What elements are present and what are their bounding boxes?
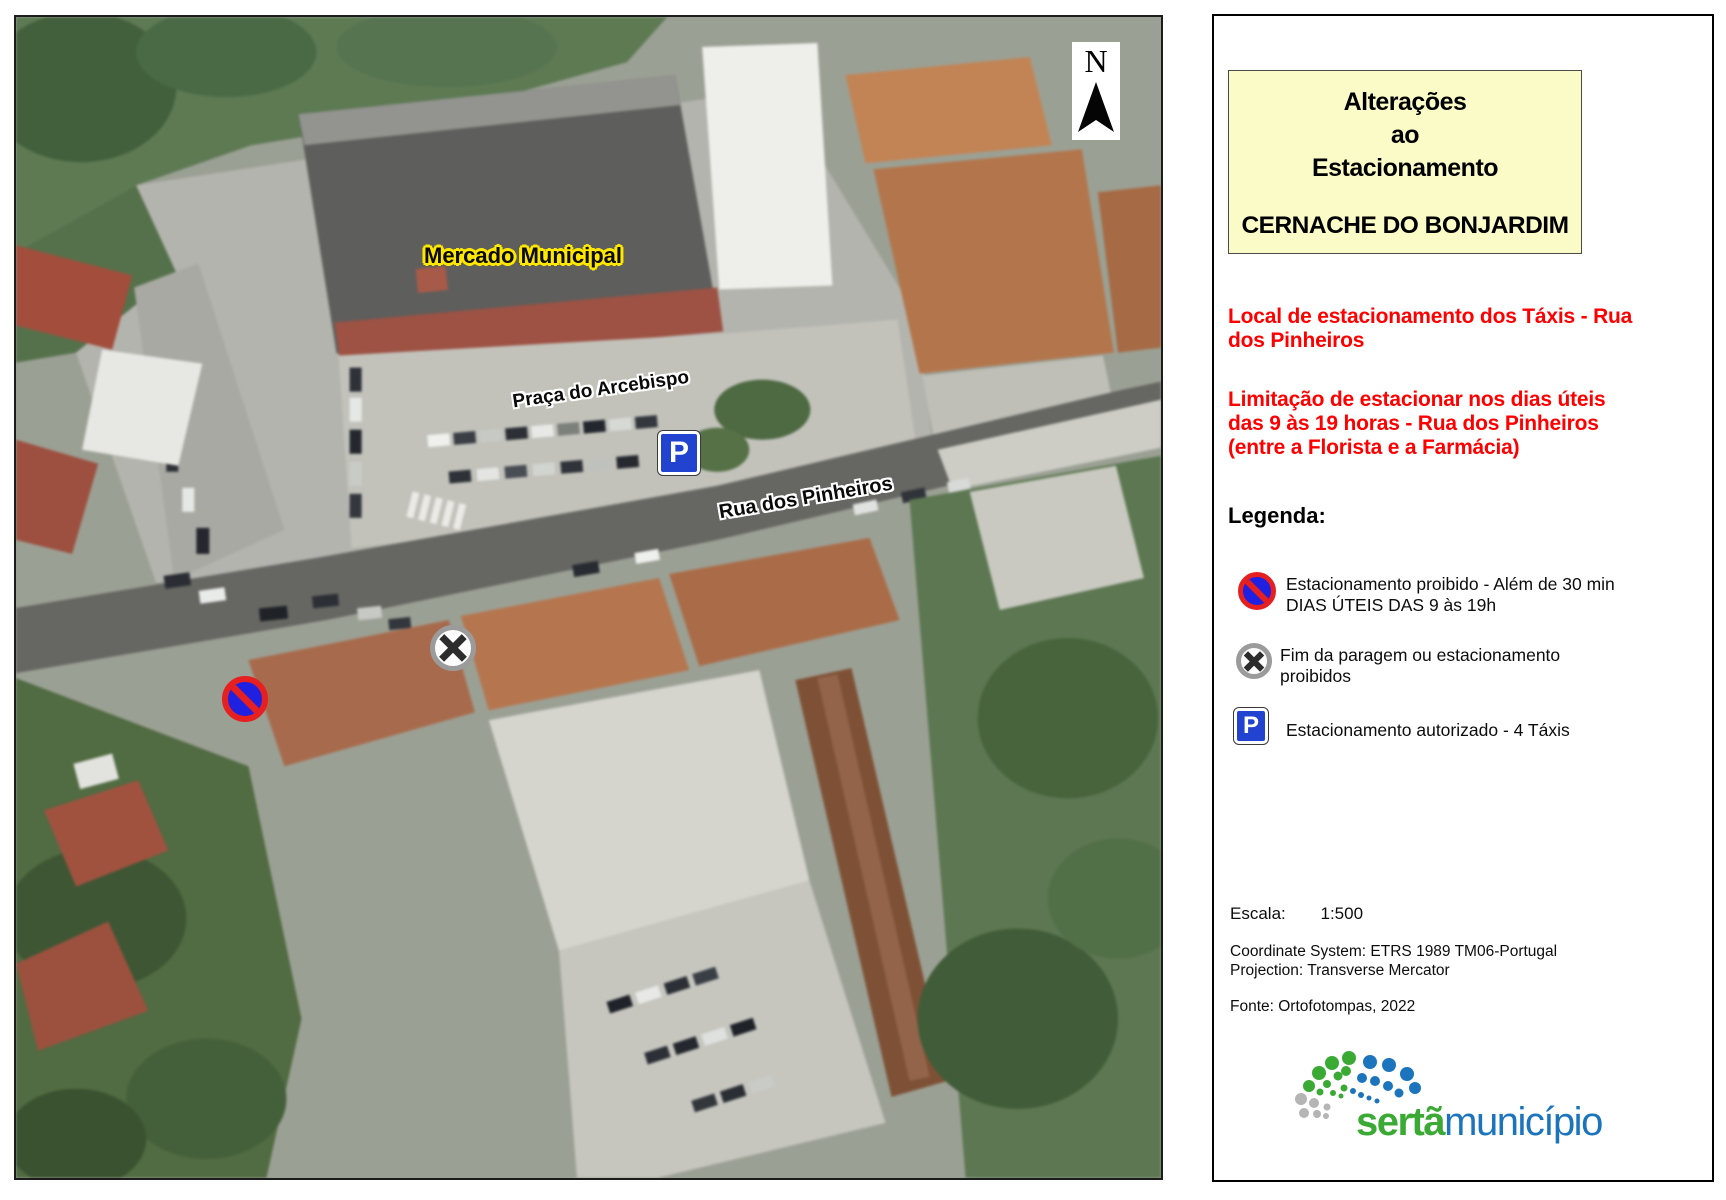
parking-sign-icon: P: [658, 431, 700, 475]
projection: Projection: Transverse Mercator: [1230, 961, 1557, 980]
parking-sign-letter: P: [669, 436, 689, 470]
aerial-map: Mercado Municipal Praça do Arcebispo Rua…: [14, 15, 1163, 1180]
note-taxi-location: Local de estacionamento dos Táxis - Rua …: [1228, 305, 1696, 353]
legend-item-end-restriction: Fim da paragem ou estacionamento proibid…: [1280, 645, 1560, 687]
no-parking-icon: [222, 676, 268, 722]
source-note: Fonte: Ortofotompas, 2022: [1230, 998, 1415, 1016]
scale-value: 1:500: [1320, 904, 1363, 923]
page-subtitle: CERNACHE DO BONJARDIM: [1229, 212, 1581, 240]
no-parking-icon: [1238, 572, 1276, 610]
end-restriction-icon: [430, 625, 476, 671]
parking-icon-letter: P: [1243, 712, 1259, 740]
serta-municipio-logo: sertãmunicípio: [1294, 1048, 1714, 1173]
coordinate-system: Coordinate System: ETRS 1989 TM06-Portug…: [1230, 942, 1557, 961]
logo-text-serta: sertã: [1356, 1100, 1444, 1144]
parking-icon: P: [1234, 708, 1268, 744]
north-letter: N: [1072, 42, 1120, 80]
end-restriction-icon: [1236, 643, 1272, 679]
legend-item-authorized-parking: Estacionamento autorizado - 4 Táxis: [1286, 720, 1570, 741]
logo-text-municipio: município: [1444, 1100, 1602, 1144]
page-title: Alterações ao Estacionamento: [1229, 86, 1581, 185]
title-box: Alterações ao Estacionamento CERNACHE DO…: [1228, 70, 1582, 254]
aerial-photo: [16, 17, 1161, 1178]
legend-item-no-parking: Estacionamento proibido - Além de 30 min…: [1286, 574, 1615, 616]
coordinate-info: Coordinate System: ETRS 1989 TM06-Portug…: [1230, 942, 1557, 980]
info-panel: Alterações ao Estacionamento CERNACHE DO…: [1212, 14, 1714, 1182]
north-arrow-icon: [1074, 80, 1118, 136]
scale-label: Escala:: [1230, 904, 1286, 923]
scale-row: Escala: 1:500: [1230, 904, 1363, 924]
legend-heading: Legenda:: [1228, 503, 1326, 529]
note-parking-limitation: Limitação de estacionar nos dias úteis d…: [1228, 388, 1696, 460]
logo-wordmark: sertãmunicípio: [1356, 1100, 1602, 1145]
mercado-municipal-label: Mercado Municipal: [424, 243, 622, 269]
north-arrow: N: [1072, 42, 1120, 140]
